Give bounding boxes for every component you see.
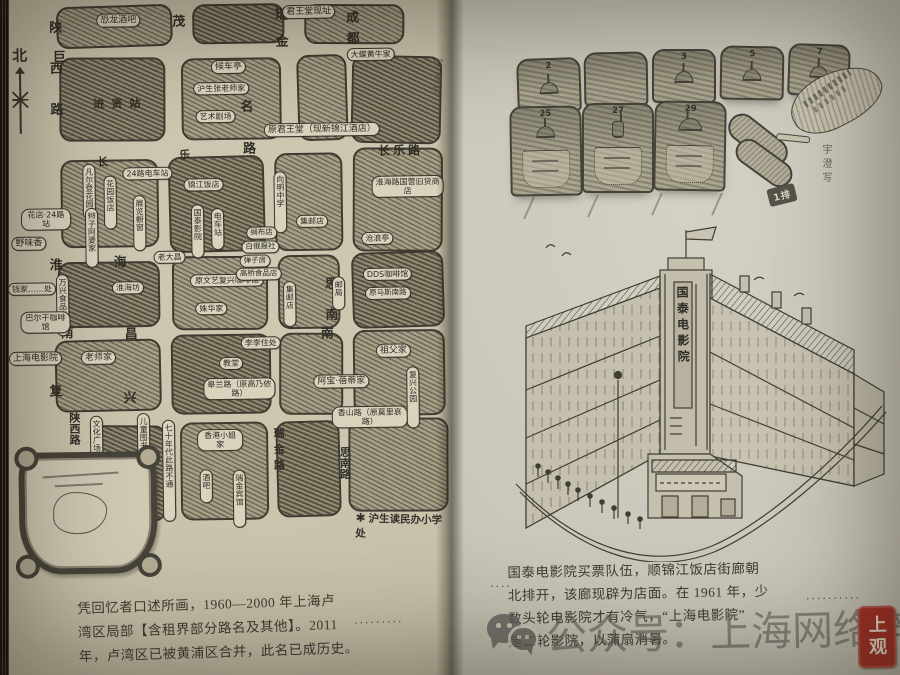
seat-number: 27 [612,106,624,116]
cinema-seat: 3 [652,49,716,103]
pocket-script-line [676,165,702,167]
left-caption: 凭回忆者口述所画，1960—2000 年上海卢 湾区局部【含租界部分路名及其他】… [77,587,405,669]
bottle-on-seat-icon [612,121,624,138]
city-block [353,329,446,416]
wechat-bubble-small [511,628,536,650]
map-label: 候车亭 [211,60,246,75]
street-name: 昌 [124,323,137,342]
book-gutter-shadow [436,0,464,675]
map-label: 瑞金宾馆 [233,470,247,528]
compass-rose-icon [12,92,28,108]
cartouche-scroll-icon [16,555,40,579]
map-label: 原马斯南路 [365,286,411,299]
book-photo: 北 陕西路 巨 进贤站 茂 名 路 瑞金 成都 长乐路 长 乐 淮 海 南 昌 … [0,0,900,675]
street-name: 长 [97,154,108,170]
city-block [348,417,448,511]
map-label: 大蝶黄牛家 [347,48,395,62]
map-label: 锦江饭店 [183,178,223,192]
map-label: 教堂 [219,357,243,371]
pocket-script-line [532,170,558,172]
map-label: 集邮店 [296,215,328,229]
map-label: 向明中学 [273,171,287,233]
map-label: 原君王堂（现新锦江酒店） [264,122,380,138]
map-label: 野味香 [11,236,46,251]
street-name: 名 [240,96,253,115]
map-label: 淮海坊 [112,281,144,295]
map-label: 展览橱窗 [133,195,147,251]
street-name: 路 [243,138,256,157]
pocket-script-line [604,167,630,169]
seat-number: 2 [545,61,551,71]
pocket-script-line [604,157,630,159]
map-footnote: ✱沪生读民办小学处 [355,511,444,543]
street-name: 海 [113,251,126,270]
street-name: 进贤站 [93,95,147,112]
cathay-theatre-sketch [502,222,892,562]
watermark-text: 公众号：上海网络辟谣 [545,594,900,663]
street-name: 复 [49,380,62,399]
pocket-script-line [532,160,558,162]
wechat-eye [517,635,521,639]
map-label: 阿宝·蓓蒂家 [313,374,369,389]
inset-map-cartouche [18,451,158,575]
street-name: 瑞金路 [270,427,287,475]
street-name: 兴 [123,387,136,406]
wechat-eye [525,635,529,639]
cap-on-seat-icon [742,69,761,81]
map-label: 沪生张老师家 [193,82,249,96]
city-block [58,261,161,328]
map-label: 恐龙酒吧 [96,13,140,28]
map-label: 皋兰路（原高乃依路） [203,377,275,400]
cinema-seat: 25 [509,105,583,196]
street-name: 成都 [341,10,361,52]
map-label: 香港小姐家 [197,429,243,452]
map-label: 淮海路国营旧货商店 [371,175,443,198]
cinema-seat: 2 [516,57,582,113]
map-label: 艺术剧场 [196,110,236,124]
map-label: 辫子阿婆家 [85,208,99,268]
cap-on-seat-icon [536,126,555,138]
map-label: 白俄报社 [241,240,279,253]
seat-pocket [665,145,714,184]
street-name: 淮 [50,254,63,273]
street-name: 陕西路 [66,412,82,445]
map-label: 复兴公园 [406,366,420,428]
book-edge [0,0,9,675]
street-name: 长乐路 [378,141,423,159]
cinema-seat [584,51,649,106]
map-label: 钱家……处 [8,282,56,296]
cap-on-seat-icon [675,71,694,83]
cap-on-seat-icon [539,82,558,95]
map-label: 24路电车站 [122,167,172,181]
pocket-script-line [676,155,702,157]
star-icon: ✱ [355,511,365,525]
hat-on-seat-icon [678,118,702,131]
cinema-seat: 5 [720,45,785,100]
map-label: 姝华家 [195,302,227,316]
map-label: 香山路（原莫里哀路） [332,405,408,428]
map-label: 花店·24路站 [21,208,71,231]
map-label: 祖父家 [376,343,411,358]
district-outline-sketch [53,492,108,535]
street-name: 思南路 [336,446,352,479]
cinema-seat: 29 [653,100,727,191]
map-label: DDS咖啡馆 [363,267,413,281]
seat-pocket [522,150,571,189]
map-label: 弹子房 [240,254,271,267]
wechat-eye [507,623,512,628]
luwan-hand-drawn-map: 北 陕西路 巨 进贤站 茂 名 路 瑞金 成都 长乐路 长 乐 淮 海 南 昌 … [4,0,444,578]
map-label: 老大昌 [153,251,185,265]
map-label: 集邮店 [283,281,297,327]
map-label: 酒吧 [200,469,214,503]
map-label: 电车站 [211,208,225,250]
artist-signature: 宇澄写 [818,144,833,186]
seat-number: 3 [681,52,687,62]
seat-number: 7 [816,47,822,57]
map-label: 巴尔干咖啡馆 [20,311,70,334]
map-label: 老师家 [81,351,116,366]
compass-north: 北 [9,45,32,108]
street-name: 茂 [172,11,185,30]
map-label: 君王堂现址 [282,4,335,19]
cartouche-scroll-icon [14,447,38,471]
map-label: 绸布店 [246,226,277,239]
map-label: 花园饭店 [103,175,117,229]
map-label: 沧浪亭 [361,232,393,246]
map-label: 国泰影院 [191,204,205,258]
cinema-seat: 27 [582,103,654,193]
seat-pocket [594,147,642,185]
city-block [54,338,162,412]
street-name: 巨 [53,46,66,65]
map-label: 七十年代此路不通 [162,420,177,522]
wechat-eye [496,623,501,628]
map-label: 上海电影院 [9,351,62,366]
map-footnote-text: 沪生读民办小学处 [355,513,442,540]
map-label: 邮局 [332,276,346,310]
street-name: 乐 [179,146,190,162]
wechat-icon [487,612,543,664]
cartouche-scroll-icon [138,553,162,577]
cinema-vertical-sign: 国泰电影院 [673,286,693,410]
map-label: 高桥食品店 [236,267,282,280]
shangguan-seal: 上观 [857,606,896,669]
cartouche-script-line [43,472,119,479]
map-label: 李李住处 [241,336,281,350]
cartouche-script-line [55,483,103,487]
seat-number: 5 [749,49,755,59]
